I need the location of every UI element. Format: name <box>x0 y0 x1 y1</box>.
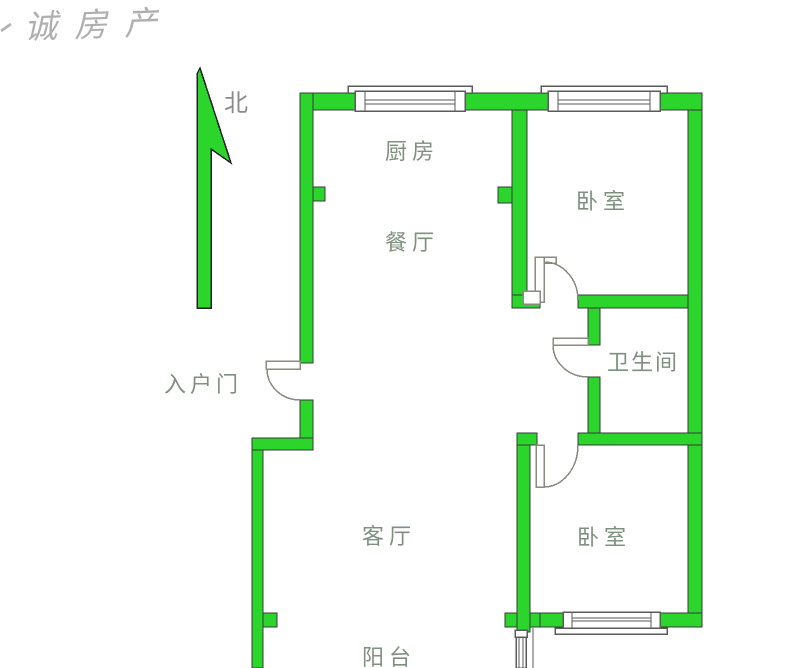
room-label-balcony: 阳台 <box>362 647 416 668</box>
north-label: 北 <box>224 92 248 116</box>
bathroom-door-icon <box>553 338 588 377</box>
bedroom2-door-icon <box>536 445 578 487</box>
bedroom2-window-icon <box>555 612 667 634</box>
room-label-bathroom: 卫生间 <box>607 352 679 374</box>
room-label-dining: 餐厅 <box>385 232 439 254</box>
bedroom1-window-icon <box>541 86 667 111</box>
room-label-entrance: 入户门 <box>164 374 242 396</box>
room-label-bedroom2: 卧室 <box>577 527 631 549</box>
entrance-door-icon <box>266 361 300 400</box>
room-label-bedroom1: 卧室 <box>576 191 630 213</box>
floorplan-canvas: 诚房产 北 厨房 餐厅 卧室 卫生间 入户门 客厅 卧室 阳台 <box>0 0 800 668</box>
bedroom1-door-icon <box>523 257 578 304</box>
floorplan-drawing <box>0 0 800 668</box>
room-label-kitchen: 厨房 <box>385 141 439 163</box>
kitchen-window-icon <box>348 86 472 111</box>
walls <box>252 93 702 668</box>
balcony-window-icon <box>515 628 533 668</box>
room-label-living: 客厅 <box>362 526 416 548</box>
agency-watermark: 诚房产 <box>23 5 174 43</box>
